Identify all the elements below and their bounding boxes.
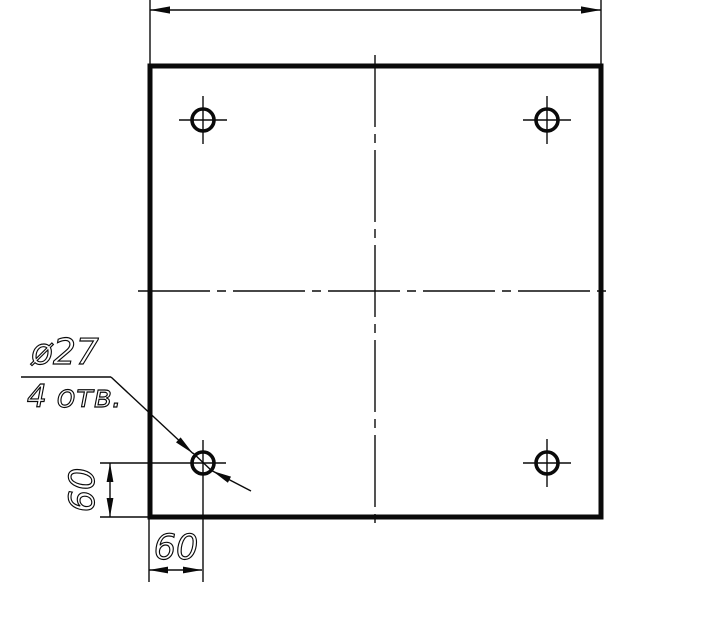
leader-arrowhead-lower bbox=[213, 471, 232, 483]
leader-count-label: 4 отв. bbox=[27, 379, 122, 415]
dim-left-value: 60 bbox=[63, 468, 103, 513]
leader-diameter-label: ø27 bbox=[30, 332, 99, 373]
dimension-bottom-60: 60 bbox=[149, 517, 202, 582]
leader-arrowhead-upper bbox=[176, 437, 193, 453]
arrowhead-up bbox=[107, 463, 114, 482]
dimension-left-60: 60 bbox=[63, 463, 150, 517]
leader-callout: ø27 4 отв. bbox=[21, 332, 251, 491]
hole-top-left bbox=[179, 96, 227, 144]
hole-top-right bbox=[523, 96, 571, 144]
arrowhead-down bbox=[107, 498, 114, 517]
arrowhead-left bbox=[150, 6, 170, 13]
hole-bottom-right bbox=[523, 439, 571, 487]
drawing-canvas: 60 60 ø27 4 отв. bbox=[0, 0, 713, 631]
drawing-svg: 60 60 ø27 4 отв. bbox=[0, 0, 713, 631]
arrowhead-right bbox=[581, 6, 601, 13]
dim-bottom-value: 60 bbox=[154, 528, 199, 568]
dimension-top-overall bbox=[150, 0, 601, 64]
